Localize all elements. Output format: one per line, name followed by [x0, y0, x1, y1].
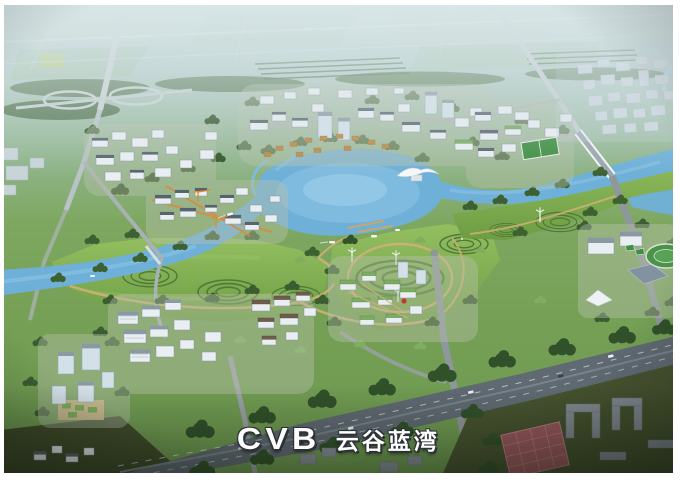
rendering-scene [0, 0, 680, 480]
vignette [0, 0, 680, 480]
aerial-masterplan-rendering: CVB 云谷蓝湾 [0, 0, 680, 480]
